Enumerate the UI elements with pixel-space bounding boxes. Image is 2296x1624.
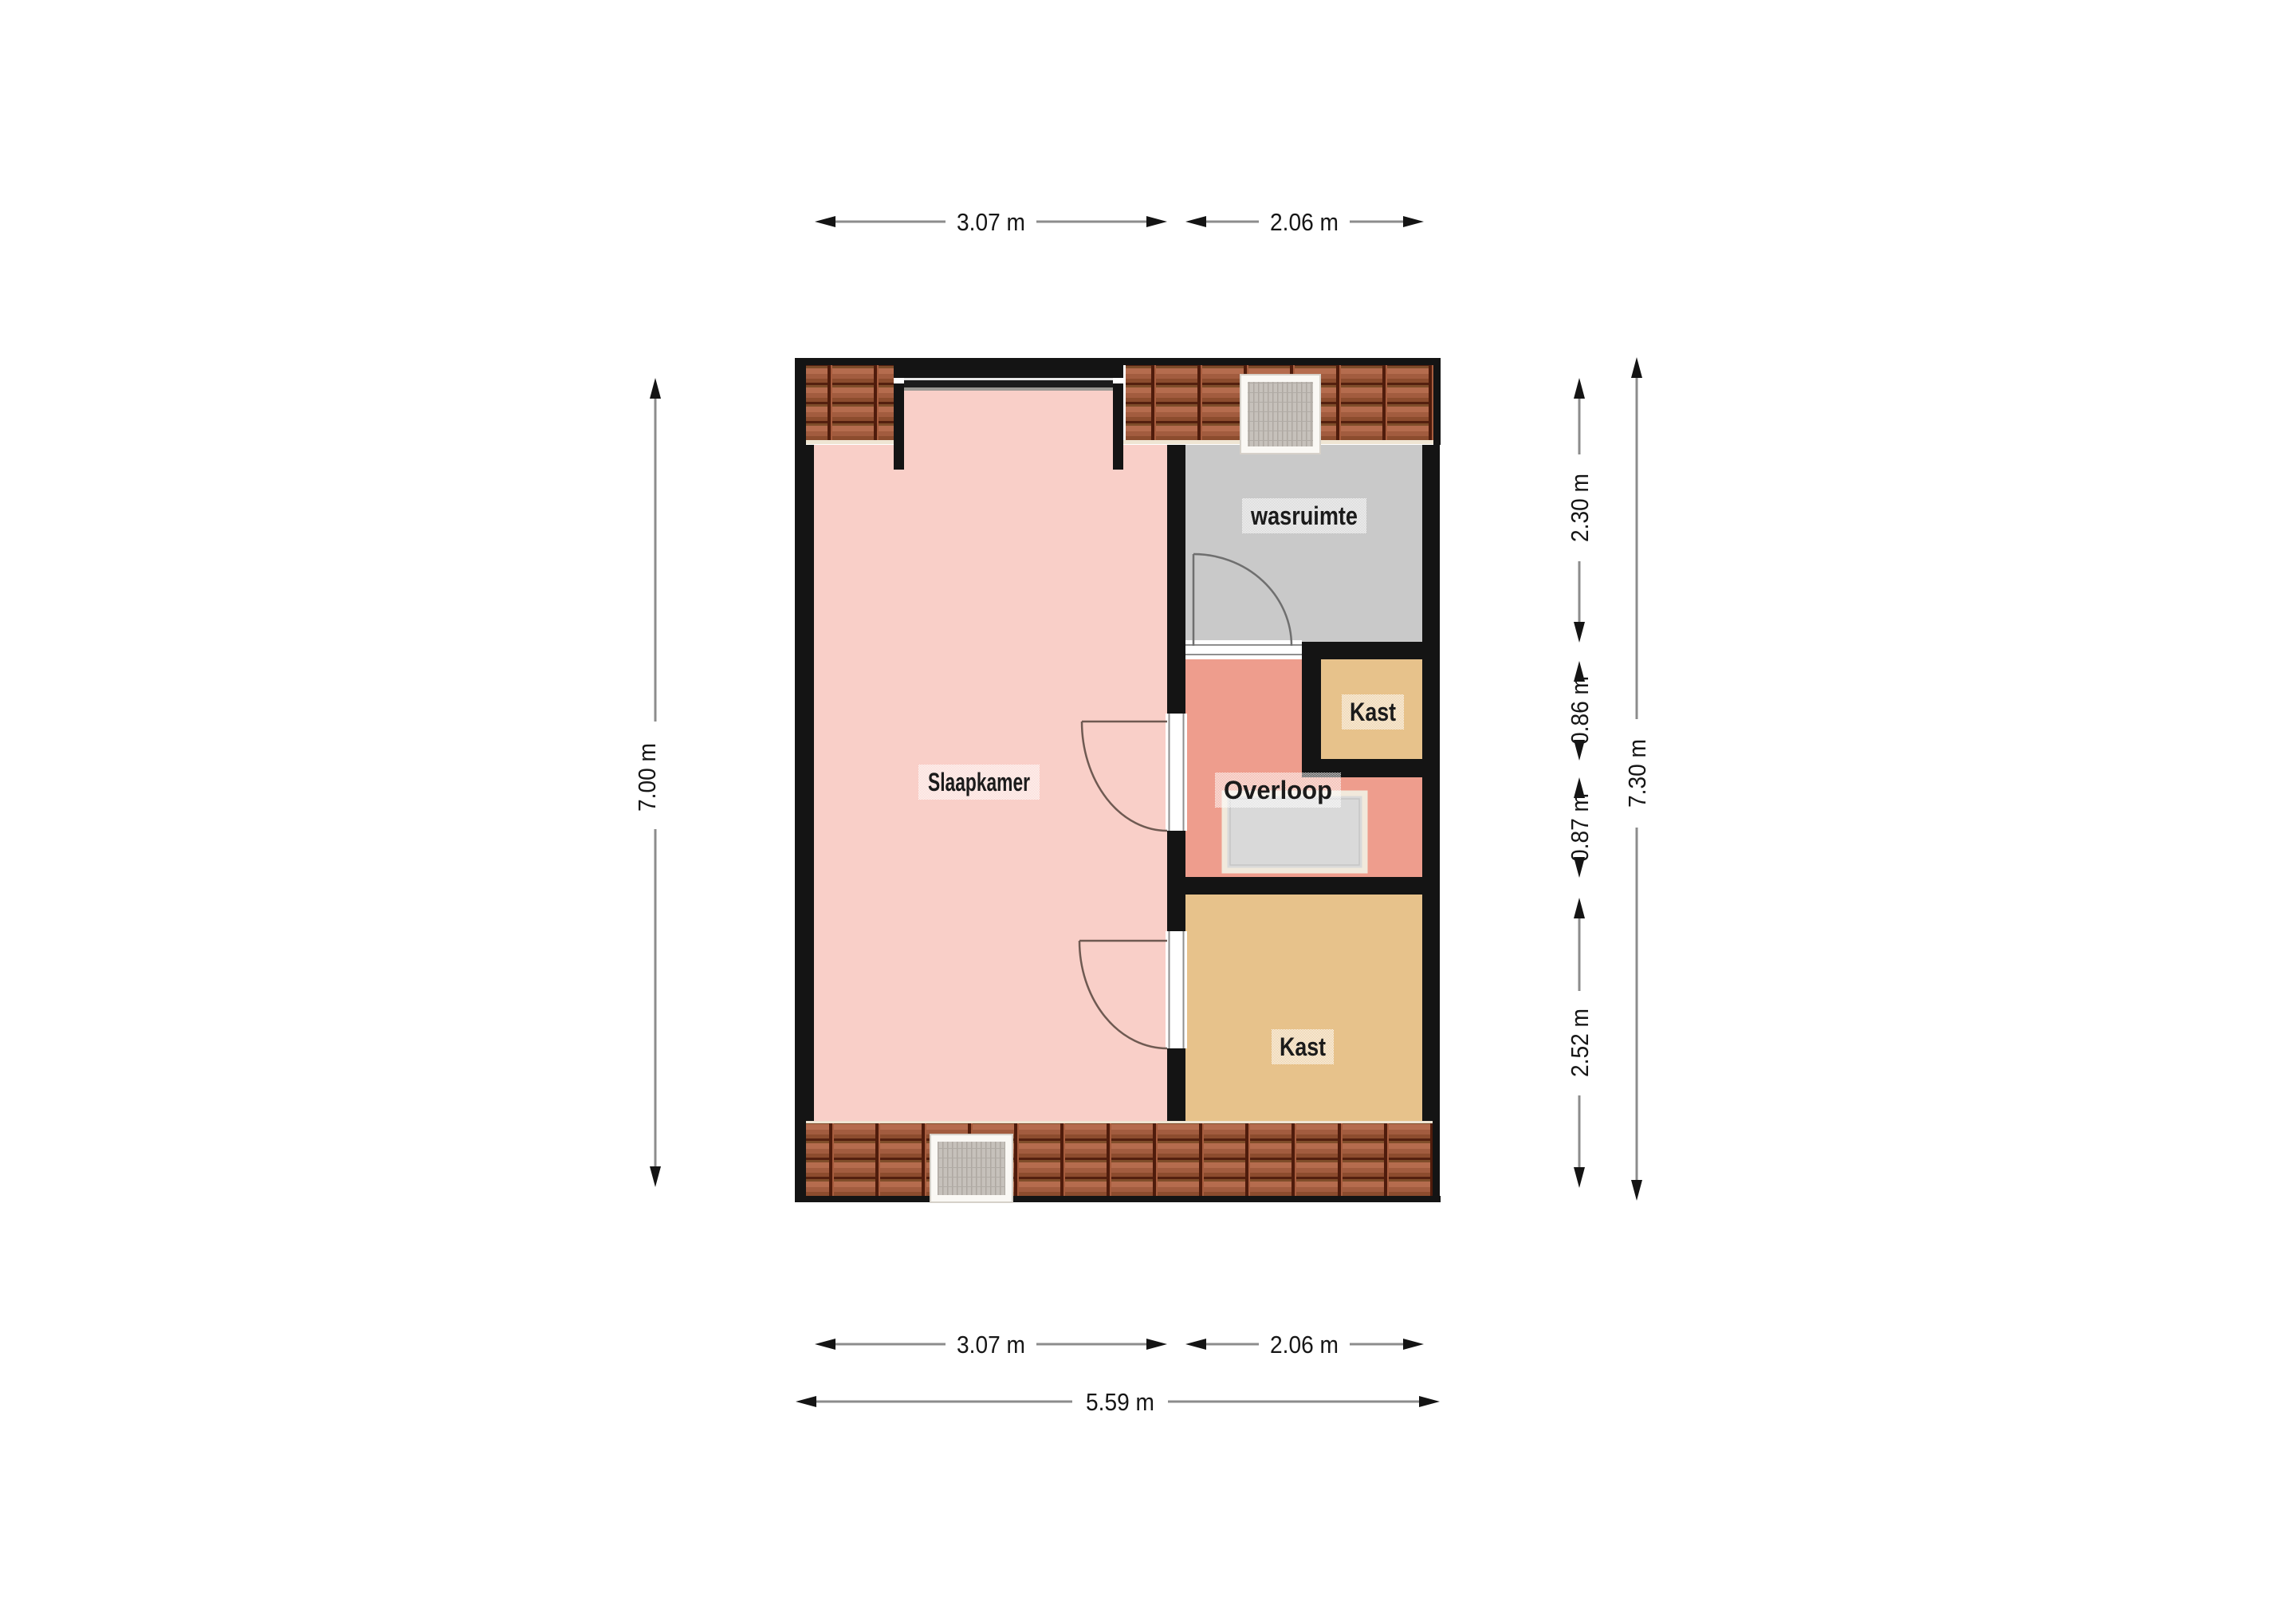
svg-text:2.06 m: 2.06 m (1270, 208, 1339, 236)
svg-text:2.06 m: 2.06 m (1270, 1331, 1339, 1359)
svg-text:Overloop: Overloop (1224, 776, 1332, 804)
svg-text:2.52 m: 2.52 m (1566, 1009, 1594, 1077)
svg-text:3.07 m: 3.07 m (957, 1331, 1025, 1359)
svg-text:Kast: Kast (1350, 698, 1396, 726)
svg-text:7.00 m: 7.00 m (633, 743, 661, 812)
svg-text:7.30 m: 7.30 m (1623, 739, 1651, 808)
svg-text:wasruimte: wasruimte (1250, 501, 1358, 530)
svg-text:0.87 m: 0.87 m (1566, 793, 1594, 862)
svg-text:2.30 m: 2.30 m (1566, 474, 1594, 542)
svg-text:5.59 m: 5.59 m (1086, 1388, 1154, 1416)
svg-text:Slaapkamer: Slaapkamer (928, 768, 1030, 796)
svg-text:3.07 m: 3.07 m (957, 208, 1025, 236)
svg-text:0.86 m: 0.86 m (1566, 676, 1594, 745)
svg-text:Kast: Kast (1280, 1032, 1326, 1061)
